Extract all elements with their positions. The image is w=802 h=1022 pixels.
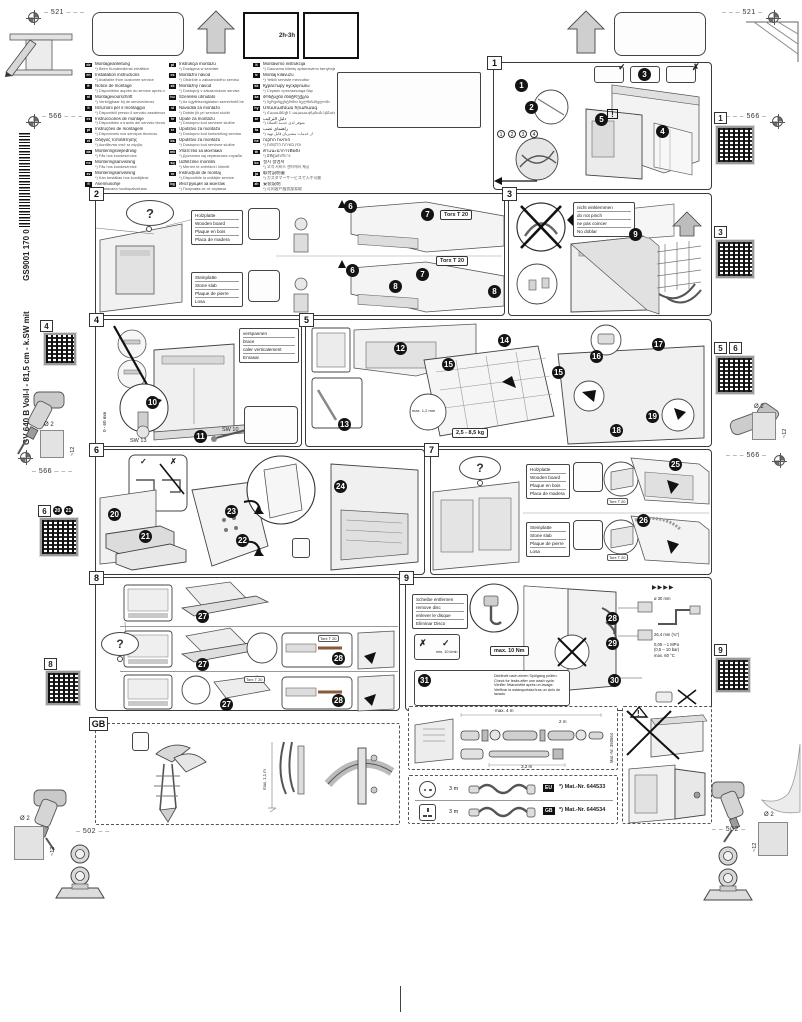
label-line: Losa — [195, 298, 239, 305]
cloud-question: ? — [101, 632, 139, 656]
panel-number: 2 — [89, 187, 104, 201]
language-note: *) 可向客户服务部索取 — [263, 187, 335, 191]
standpipe-height-label: max. 1,1 m — [262, 769, 267, 790]
crosshair-icon — [774, 455, 785, 466]
brace-label-box: verspannenbracecaler verticalementEnrasa… — [239, 328, 299, 363]
step-marker: 27 — [196, 610, 209, 623]
step-marker: 23 — [225, 505, 238, 518]
language-entry: da Monteringsvejledning *) Fås hos kunde… — [85, 149, 165, 158]
pressure-spec: 0,05 – 1 MPa(0,5 – 10 bar)max. 60 °C — [654, 642, 679, 658]
panel-types-box-right — [614, 12, 706, 56]
gap-label: max. 1,2 mm — [412, 408, 435, 413]
language-entry: ro Instrucţiuni de montaj *) Disponibile… — [169, 171, 249, 180]
torx-label: Torx T 20 — [318, 635, 339, 642]
language-note: *) Disponibile la unităţile service — [179, 176, 249, 180]
language-note: *) カスタマーサービスで入手可能 — [263, 176, 335, 180]
language-column-3: lt Montavimo instrukcija *) Gaunama klie… — [253, 62, 335, 192]
language-note: *) มีที่ศูนย์บริการ — [263, 154, 335, 158]
dimension-bottom-left: – 502 – – — [76, 828, 110, 835]
language-entry: ar دليل التركيب *) متوفر لدى خدمة العملا… — [253, 117, 335, 126]
step-marker: 14 — [498, 334, 511, 347]
language-code-badge: pl — [169, 63, 176, 68]
language-code-badge: mk — [169, 150, 176, 155]
step-marker: 9 — [629, 228, 642, 241]
language-column-2: pl Instrukcja montażu *) Dostępna w serw… — [169, 62, 249, 192]
drain-diameter-spec: ø 30 mm — [654, 596, 671, 601]
language-code-badge: hy — [253, 106, 260, 111]
label-line: verspannen — [243, 330, 295, 338]
step-marker: 27 — [220, 698, 233, 711]
wood-label-box: HolzplatteWooden boardPlaque en boisPlac… — [191, 210, 243, 245]
crosshair-icon — [20, 452, 31, 463]
label-line: No doblar — [577, 228, 631, 235]
torx-label: Torx T 20 — [607, 554, 628, 561]
drill-diameter-label: Ø 2 — [20, 816, 30, 822]
label-line: nicht einklemmen — [577, 204, 631, 212]
language-note: *) Disponibili presso il servizio assist… — [95, 111, 165, 115]
language-entry: sk Montážny návod *) Dostupný v zákazníc… — [169, 84, 249, 93]
qr-label: 9 — [714, 644, 727, 656]
step-marker: 5 — [595, 113, 608, 126]
trash-box — [132, 732, 149, 751]
question-mark: ? — [476, 461, 483, 475]
adjust-sequence-box — [244, 406, 298, 444]
step-marker: 13 — [338, 418, 351, 431]
step-marker: 8 — [488, 285, 501, 298]
crosshair-icon — [772, 116, 783, 127]
drill-depth-label: ~12 — [752, 843, 758, 852]
drill-depth-block — [40, 430, 64, 458]
language-code-badge: ja — [253, 172, 260, 177]
language-code-badge: ro — [169, 172, 176, 177]
check-icon: ✓ — [618, 62, 626, 73]
drill-diameter-label: Ø 2 — [754, 404, 764, 410]
row-divider — [415, 800, 613, 801]
panel-number: 5 — [299, 313, 314, 327]
language-entry: no Monteringsanvisning *) Fås hos kundes… — [85, 160, 165, 169]
language-note: *) Dostupno kod servisne službe — [179, 121, 249, 125]
language-note: *) Dostupno kod servisne službe — [179, 143, 249, 147]
language-note: *) Dobite jih pri servisni službi — [179, 111, 249, 115]
language-entry: sr Uputstvo za montažu *) Dostupno kod k… — [169, 127, 249, 136]
language-note: *) Obdržíte u zákaznického servisu — [179, 78, 249, 82]
language-code-badge: hr — [169, 117, 176, 122]
qr-label: 4 — [40, 320, 53, 332]
language-code-badge: hu — [169, 95, 176, 100]
language-note: *) Fås hos kundeservice — [95, 165, 165, 169]
panel-number: 6 — [89, 443, 104, 457]
arrow-up-icon-left — [196, 9, 236, 55]
qr-code — [716, 240, 754, 278]
note-line: Verificar la estanqueidad tras un ciclo … — [494, 688, 568, 697]
language-entry: bg Инструкция за монтаж *) Получава се о… — [169, 182, 249, 191]
pressure-line: max. 60 °C — [654, 653, 679, 658]
language-note: *) Gaunama klientų aptarnavimo tarnyboje — [263, 67, 335, 71]
cross-icon: ✗ — [692, 62, 700, 73]
leak-check-text: Dichtheit nach einem Spülgang prüfen.Che… — [494, 674, 568, 697]
step-marker: 2 — [525, 101, 538, 114]
language-note: *) Beim Kundendienst erhältlich — [95, 67, 165, 71]
language-entry: th คำแนะนำการติดตั้ง *) มีที่ศูนย์บริการ — [253, 149, 335, 158]
time-badge: 2h-3h — [279, 33, 295, 39]
wrench-size-label: SW 13 — [130, 438, 147, 444]
label-line: Holzplatte — [195, 212, 239, 220]
language-code-badge: sq — [169, 161, 176, 166]
language-entry: mk Упатство за монтажа *) Достапно кај с… — [169, 149, 249, 158]
dimension-bottom-right: – – 502 – — [712, 826, 746, 833]
label-line: Plaque de pierre — [530, 540, 566, 548]
panel-number: 8 — [89, 571, 104, 585]
drill-depth-label: ~12 — [782, 429, 788, 438]
language-entry: nl Montagevoorschrift *) Verkrijgbaar bi… — [85, 95, 165, 104]
step-marker: 27 — [196, 658, 209, 671]
language-note: *) متوفر لدى خدمة العملاء — [263, 121, 335, 125]
language-code-badge: he — [253, 139, 260, 144]
step-marker: 12 — [394, 342, 407, 355]
row-divider — [120, 626, 398, 627]
language-note: *) Kan beställas hos kundtjänst — [95, 176, 165, 180]
region-tag: EU — [543, 784, 554, 792]
part-ref-circle: 3 — [519, 130, 527, 138]
drain-pipe-icon — [654, 602, 704, 628]
language-note: *) Verkrijgbaar bij de servicedienst — [95, 100, 165, 104]
step-marker: 25 — [669, 458, 682, 471]
language-code-badge: it — [85, 106, 92, 111]
panel-step-3: 3 nicht einklemmendo not pinchn — [508, 193, 712, 316]
language-entry: ko 설치 설명서 *) 고객 서비스 센터에서 제공 — [253, 160, 335, 169]
question-mark: ? — [116, 637, 123, 651]
panel-gb: GB max. 1,1 m — [95, 723, 400, 825]
note-line: Dichtheit nach einem Spülgang prüfen. — [494, 674, 568, 679]
panel-number: 7 — [424, 443, 439, 457]
step-marker: 8 — [389, 280, 402, 293]
step-marker: 15 — [552, 366, 565, 379]
step-marker: 28 — [332, 652, 345, 665]
language-entry: bs Uputstvo za montažu *) Dostupno kod s… — [169, 138, 249, 147]
label-line: Placa de madera — [195, 236, 239, 243]
crosshair-icon — [28, 116, 39, 127]
qr-label: 6 — [38, 505, 51, 517]
torx-label: Torx T 20 — [440, 210, 472, 220]
plinth-door-illustration — [96, 450, 426, 576]
socket-eu-icon — [419, 781, 436, 798]
qr-code — [44, 333, 76, 365]
hose-max-length: max. 4 m — [495, 708, 514, 713]
drill-depth-label: ~12 — [70, 447, 76, 456]
label-line: Holzplatte — [530, 466, 566, 474]
language-note: *) Disponibles auprès du service après-v… — [95, 89, 165, 93]
manual-page: – 521 – – – 2h-3h — [0, 0, 802, 1022]
dim-value: 566 — [39, 468, 52, 475]
step-marker: 6 — [344, 200, 357, 213]
language-code-badge: el — [85, 139, 92, 144]
drill-depth-block — [752, 412, 776, 440]
language-entry: es Instrucciones de montaje *) Disponibl… — [85, 117, 165, 126]
language-note: *) 고객 서비스 센터에서 제공 — [263, 165, 335, 169]
step-marker: 7 — [421, 208, 434, 221]
language-entry: pt Instruções de montagem *) Disponíveis… — [85, 127, 165, 136]
phone-scan-box — [303, 12, 359, 59]
language-code-badge: nl — [85, 95, 92, 100]
step-marker: 1 — [515, 79, 528, 92]
language-entry: fr Notice de montage *) Disponibles aupr… — [85, 84, 165, 93]
dim-value: 566 — [747, 113, 760, 120]
cord-mat-number: *) Mat.-Nr. 644533 — [559, 784, 605, 790]
step-marker: 21 — [139, 530, 152, 543]
tree-box — [573, 462, 603, 492]
language-code-badge: pt — [85, 128, 92, 133]
language-code-badge: fa — [253, 128, 260, 133]
step-marker: 29 — [606, 637, 619, 650]
crosshair-icon — [768, 12, 779, 23]
label-line: Eliminar Disco — [416, 620, 464, 627]
label-line: enlever le disque — [416, 612, 464, 620]
pencil-fold-icon — [4, 26, 80, 78]
plinth-variants-illustration — [96, 578, 401, 712]
hinge-bracket-icon — [52, 840, 108, 902]
trash-box — [292, 538, 310, 558]
drill-depth-block — [758, 822, 788, 856]
language-note: *) از خدمات مشتریان قابل تهیه — [263, 132, 335, 136]
dim-value: 521 — [743, 9, 756, 16]
step-marker: 3 — [638, 68, 651, 81]
language-entry: el Οδηγίες τοποθέτησης *) Διατίθενται απ… — [85, 138, 165, 147]
flow-arrows-icon: ▶▶▶▶ — [652, 584, 674, 591]
svg-text:!: ! — [637, 709, 640, 718]
language-entry: ka მონტაჟის ინსტრუქცია *) სერვისცენტრშია… — [253, 95, 335, 104]
language-note: *) Достапно кај сервисната служба — [179, 154, 249, 158]
cloud-question: ? — [126, 200, 174, 226]
language-code-badge: bg — [169, 182, 176, 187]
language-note: *) Az ügyfélszolgálaton szerezhető be — [179, 100, 249, 104]
language-note: *) Merren te shërbimi i klientit — [179, 165, 249, 169]
step-marker: 6 — [346, 264, 359, 277]
language-entry: cs Montážní návod *) Obdržíte u zákaznic… — [169, 73, 249, 82]
wood-label-box: HolzplatteWooden boardPlaque en boisPlac… — [526, 464, 570, 499]
step-marker: 22 — [236, 534, 249, 547]
wrench-size-label: SW 10 — [222, 427, 239, 433]
region-tag: GB — [543, 807, 555, 815]
step-marker: 30 — [608, 674, 621, 687]
language-code-badge: zh — [253, 182, 260, 187]
power-cord-icon — [467, 803, 537, 821]
step-marker: 19 — [646, 410, 659, 423]
language-code-badge: sk — [169, 84, 176, 89]
panel-step-6: 6 ✓ ✗ 20 21 — [95, 449, 425, 575]
language-code-badge: fr — [85, 84, 92, 89]
language-entry: kk Құрастыру нұсқаулығы *) Сервис орталы… — [253, 84, 335, 93]
language-entry: lt Montavimo instrukcija *) Gaunama klie… — [253, 62, 335, 71]
language-code-badge: es — [85, 117, 92, 122]
dimension-top-left: – 521 – – – — [44, 9, 85, 16]
language-entry: hr Upute za montažu *) Dostupno kod serv… — [169, 117, 249, 126]
page-curl — [744, 742, 802, 818]
dimension-side-left: – 566 – – – — [42, 113, 83, 120]
language-entry: tr Montaj kılavuzu *) Yetkili serviste m… — [253, 73, 335, 82]
label-line: Plaque en bois — [195, 228, 239, 236]
language-code-badge: de — [85, 63, 92, 68]
language-note: *) Saatavana huoltopalvelusta — [95, 187, 165, 191]
language-code-badge: ka — [253, 95, 260, 100]
fold-corner-icon — [744, 20, 800, 64]
language-note: *) Получава се от сервиза — [179, 187, 249, 191]
panel-hose-extension: max. 4 m 2 m 3,2 m Mat.-Nr. 350564 — [408, 706, 618, 770]
step-marker: 10 — [146, 396, 159, 409]
pinch-warning-box: nicht einklemmendo not pinchne pas coinc… — [573, 202, 635, 237]
cabinet-fronts-box — [337, 72, 481, 128]
dimension-side-right: – – – 566 – — [726, 113, 767, 120]
language-entry: sl Navodila za montažo *) Dobite jih pri… — [169, 106, 249, 115]
part-ref-circle: 2 — [508, 130, 516, 138]
panel-gb-tag: GB — [89, 717, 108, 731]
drill-depth-block — [14, 826, 44, 860]
step-marker: 7 — [416, 268, 429, 281]
panel-step-7: 7 ? HolzplatteWooden boardPlaque en bois… — [430, 449, 712, 575]
language-code-badge: tr — [253, 73, 260, 78]
step-marker: 20 — [108, 508, 121, 521]
label-line: do not pinch — [577, 212, 631, 220]
tree-box — [248, 208, 280, 240]
step-marker: 31 — [418, 674, 431, 687]
language-code-badge: lt — [253, 63, 260, 68]
qr-code — [40, 518, 78, 556]
step-marker: 11 — [194, 430, 207, 443]
language-code-badge: da — [85, 150, 92, 155]
language-note: *) זמין בשירות הלקוחות — [263, 143, 335, 147]
crosshair-icon — [28, 12, 39, 23]
label-line: Scheibe entfernen — [416, 596, 464, 604]
dim-value: 502 — [726, 826, 739, 833]
language-entry: he הוראות התקנה *) זמין בשירות הלקוחות — [253, 138, 335, 147]
language-entry: it Istruzioni per il montaggio *) Dispon… — [85, 106, 165, 115]
language-code-badge: no — [85, 161, 92, 166]
dim-value: 502 — [83, 828, 96, 835]
height-range-label: 0 - 60 mm — [102, 412, 107, 432]
panel-step-8: 8 ? — [95, 577, 400, 711]
check-icon: ✓ — [140, 457, 147, 466]
language-note: *) Disponibles a través del servicio téc… — [95, 121, 165, 125]
stone-label-box: SteinplatteStone slabPlaque de pierreLos… — [191, 272, 243, 307]
drill-depth-label: ~12 — [50, 847, 56, 856]
dimension-side-left-2: – 566 – – – — [32, 468, 73, 475]
label-line: Steinplatte — [530, 524, 566, 532]
part-ref-circle: 4 — [530, 130, 538, 138]
language-note: *) Հասանելի է սպասարկման կենտրոնում — [263, 111, 335, 115]
qr-code — [716, 356, 754, 394]
dim-value: 566 — [49, 113, 62, 120]
language-entry: pl Instrukcja montażu *) Dostępna w serw… — [169, 62, 249, 71]
language-column-1: de Montageanleitung *) Beim Kundendienst… — [85, 62, 165, 192]
fold-mark — [400, 986, 401, 1012]
qr-label: 8 — [44, 658, 57, 670]
panel-step-5: 5 12 13 14 1 — [305, 319, 712, 447]
language-note: *) Available from customer service — [95, 78, 165, 82]
label-line: ne pas coincer — [577, 220, 631, 228]
bricks-box — [573, 520, 603, 550]
qr-code — [46, 671, 80, 705]
dimension-side-right-2: – – – 566 – — [726, 452, 767, 459]
qr-label: 6 — [729, 342, 742, 354]
language-code-badge: kk — [253, 84, 260, 89]
parts-list: 1234 — [497, 129, 551, 140]
warning-triangle-icon: ! — [607, 109, 618, 119]
torque-label: max. 10 Nm — [490, 646, 529, 656]
language-code-badge: sl — [169, 106, 176, 111]
language-entry: en Installation instructions *) Availabl… — [85, 73, 165, 82]
torx-label: Torx T 20 — [607, 498, 628, 505]
no-extension-icon — [654, 688, 698, 706]
qr-step-ref: 20 — [53, 506, 62, 515]
panel-types-box-left — [92, 12, 184, 56]
panel-step-4: 4 verspannenbracecaler verticalementEnra… — [95, 319, 302, 447]
row-divider — [120, 671, 398, 672]
language-note: *) Dostupný v zákazníckom servise — [179, 89, 249, 93]
language-code-badge: sr — [169, 128, 176, 133]
connection-spec: 26,4 mm (¾") — [654, 632, 679, 637]
label-line: Steinplatte — [195, 274, 239, 282]
label-line: Losa — [530, 548, 566, 555]
panel-number: 3 — [502, 187, 517, 201]
panel-weight-label: 2,5 - 8,5 kg — [452, 428, 488, 438]
label-line: Plaque en bois — [530, 482, 566, 490]
label-line: remove disc — [416, 604, 464, 612]
language-note: *) Dostupno kod korisničkog servisa — [179, 132, 249, 136]
language-code-badge: ar — [253, 117, 260, 122]
label-line: Stone slab — [195, 282, 239, 290]
language-note: *) Yetkili serviste mevcuttur — [263, 78, 335, 82]
language-code-badge: cs — [169, 73, 176, 78]
cord-length: 3 m — [449, 809, 458, 815]
language-entry: sq Udhëzime montimi *) Merren te shërbim… — [169, 160, 249, 169]
language-note: *) Διατίθενται από το σέρβις — [95, 143, 165, 147]
language-note: *) Disponíveis nos serviços técnicos — [95, 132, 165, 136]
panel-door-warning: ! — [622, 706, 712, 824]
hinge-bracket-icon — [700, 842, 756, 904]
language-code-badge: bs — [169, 139, 176, 144]
panel-number: 4 — [89, 313, 104, 327]
qr-step-ref: 21 — [64, 506, 73, 515]
step-marker: 26 — [637, 514, 650, 527]
panel-step-2: 2 ? HolzplatteWooden boardPlaque en bois… — [95, 193, 505, 316]
question-mark: ? — [146, 206, 154, 221]
panel-number: 1 — [487, 56, 502, 70]
stone-label-box: SteinplatteStone slabPlaque de pierreLos… — [526, 522, 570, 557]
language-code-badge: ko — [253, 161, 260, 166]
check-icon: ✓ — [442, 638, 450, 649]
drill-diameter-label: Ø 2 — [44, 422, 54, 428]
flow-spec: min. 10 l/min — [436, 650, 458, 654]
qr-code — [716, 658, 750, 692]
label-line: caler verticalement — [243, 346, 295, 354]
part-ref-circle: 1 — [497, 130, 505, 138]
panel-number: 9 — [399, 571, 414, 585]
qr-label: 1 — [714, 112, 727, 124]
barcode — [19, 133, 30, 229]
qr-label: 5 — [714, 342, 727, 354]
label-line: Wooden board — [195, 220, 239, 228]
step-marker: 28 — [606, 612, 619, 625]
bricks-box — [248, 270, 280, 302]
language-note: *) Сервис орталығында бар — [263, 89, 335, 93]
cross-icon: ✗ — [419, 638, 427, 649]
language-entry: hy Մոնտաժման հրահանգ *) Հասանելի է սպասա… — [253, 106, 335, 115]
remove-disc-box: Scheibe entfernenremove discenlever le d… — [412, 594, 468, 629]
step-marker: 28 — [332, 694, 345, 707]
language-code-badge: th — [253, 150, 260, 155]
socket-uk-icon — [419, 804, 436, 821]
cloud-question: ? — [459, 456, 501, 480]
label-line: Stone slab — [530, 532, 566, 540]
